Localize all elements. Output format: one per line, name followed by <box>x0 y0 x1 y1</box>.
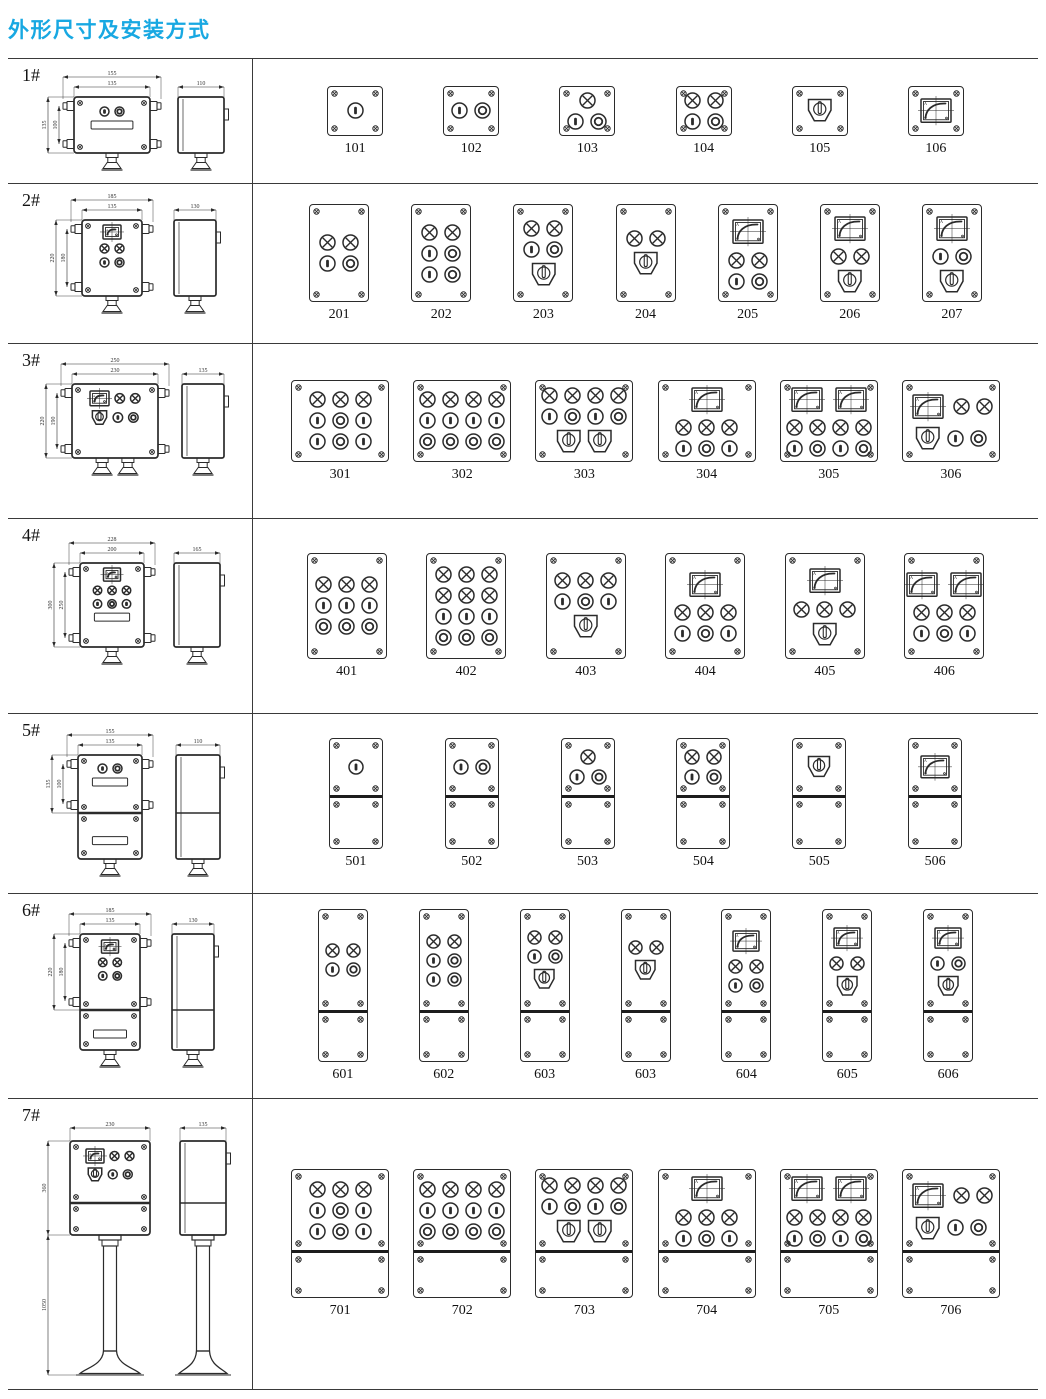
panel-row <box>532 967 557 991</box>
variant: 105 <box>792 86 848 157</box>
panel-row <box>579 748 597 766</box>
panel-section <box>420 1013 468 1061</box>
variant-label: 503 <box>577 854 598 870</box>
indicator-lamp-icon <box>674 418 693 437</box>
selector-switch-icon <box>532 967 557 991</box>
screw-icon <box>787 646 798 657</box>
panel-section <box>328 87 382 135</box>
variant-label: 202 <box>431 307 452 323</box>
start-button-icon <box>308 1222 327 1241</box>
panel-section <box>781 1253 877 1297</box>
screw-icon <box>904 1285 915 1296</box>
screw-icon <box>498 1238 509 1249</box>
variant: 703 <box>535 1169 633 1319</box>
panel-content <box>526 929 564 991</box>
screw-icon <box>867 289 878 300</box>
selector-switch-icon <box>633 958 658 982</box>
panel-row <box>434 607 499 626</box>
ammeter-icon: A <box>805 564 845 597</box>
variant-label: 101 <box>345 141 366 157</box>
indicator-lamp-icon <box>578 91 597 110</box>
variant: A206 <box>820 204 880 323</box>
start-button-icon <box>958 624 977 643</box>
start-button-icon <box>553 592 572 611</box>
screw-icon <box>447 836 458 847</box>
screw-icon <box>421 1049 432 1060</box>
stop-button-icon <box>808 1229 827 1248</box>
panel-row <box>425 952 463 969</box>
panel-section: AA <box>905 554 983 658</box>
screw-icon <box>660 382 671 393</box>
row-label: 2# <box>22 190 40 211</box>
panel-row <box>625 229 667 248</box>
panel-section: A <box>923 205 981 301</box>
panel-section <box>521 1013 569 1061</box>
dimension-label: 230 <box>106 1122 115 1128</box>
ammeter-icon: A <box>728 215 768 248</box>
panel-row <box>553 571 618 590</box>
screw-icon <box>910 836 921 847</box>
panel-section <box>412 205 470 301</box>
panel-row <box>627 939 665 956</box>
screw-icon <box>987 382 998 393</box>
panel-section <box>420 910 468 1010</box>
panel-row <box>530 261 558 287</box>
panel-content <box>553 571 618 639</box>
indicator-lamp-icon <box>720 1208 739 1227</box>
indicator-lamp-icon <box>526 929 543 946</box>
screw-icon <box>293 1254 304 1265</box>
screw-icon <box>493 555 504 566</box>
variant: 104 <box>676 86 732 157</box>
screw-icon <box>331 799 342 810</box>
variant-label: 402 <box>456 664 477 680</box>
panel-row <box>308 1180 373 1199</box>
indicator-lamp-icon <box>308 1180 327 1199</box>
selector-switch-icon <box>914 425 942 451</box>
variant-panel <box>621 909 671 1062</box>
indicator-lamp-icon <box>808 418 827 437</box>
screw-icon <box>618 206 629 217</box>
panel-section <box>909 798 961 848</box>
screw-icon <box>822 206 833 217</box>
panel-section <box>446 798 498 848</box>
panel-section: A <box>903 1170 999 1250</box>
start-button-icon <box>346 101 365 120</box>
svg-text:A: A <box>916 397 919 402</box>
panel-section <box>823 1013 871 1061</box>
panel-content <box>683 748 723 786</box>
screw-icon <box>413 206 424 217</box>
panel-row <box>806 97 834 123</box>
stop-button-icon <box>341 254 360 273</box>
indicator-lamp-icon <box>345 942 362 959</box>
variant-panel: A <box>658 1169 756 1298</box>
svg-text:A: A <box>695 1179 698 1184</box>
indicator-lamp-icon <box>829 247 848 266</box>
panel-section <box>292 1253 388 1297</box>
screw-icon <box>782 1285 793 1296</box>
variant-label: 706 <box>940 1303 961 1319</box>
panel-row <box>425 933 463 950</box>
indicator-lamp-icon <box>308 390 327 409</box>
screw-icon <box>447 783 458 794</box>
start-button-icon <box>599 592 618 611</box>
screw-icon <box>717 740 728 751</box>
variant-panel <box>676 738 730 849</box>
panel-row <box>522 219 564 238</box>
indicator-lamp-icon <box>808 1208 827 1227</box>
ammeter-icon: A <box>685 568 725 601</box>
screw-icon <box>623 1049 634 1060</box>
panel-section <box>536 1170 632 1250</box>
panel-content: A <box>916 94 956 127</box>
screw-icon <box>623 998 634 1009</box>
start-button-icon <box>347 758 365 776</box>
screw-icon <box>678 799 689 810</box>
drawing-cell: 2#A185135130220180 <box>8 184 253 343</box>
variant-cell: 601602603603A604A605A606 <box>253 894 1038 1098</box>
panel-row <box>673 624 738 643</box>
panel-row <box>522 240 564 259</box>
screw-icon <box>421 911 432 922</box>
variant-label: 504 <box>693 854 714 870</box>
svg-text:A: A <box>813 571 816 576</box>
panel-content <box>318 233 360 273</box>
ammeter-icon: A <box>908 1179 948 1212</box>
screw-icon <box>620 1285 631 1296</box>
panel-row: AA <box>787 383 871 416</box>
screw-icon <box>904 1171 915 1182</box>
screw-icon <box>623 1014 634 1025</box>
variant-label: 304 <box>696 467 717 483</box>
indicator-lamp-icon <box>418 1180 437 1199</box>
variant: A304 <box>658 380 756 483</box>
panel-row: A <box>687 383 727 416</box>
panel-row <box>785 439 873 458</box>
variant: 501 <box>329 738 383 870</box>
screw-icon <box>498 1254 509 1265</box>
indicator-lamp-icon <box>464 1180 483 1199</box>
dimension-label: 135 <box>199 368 208 374</box>
row-label: 6# <box>22 900 40 921</box>
variant-panel <box>535 1169 633 1298</box>
screw-icon <box>486 123 497 134</box>
ammeter-icon: A <box>932 212 972 245</box>
variant: AA305 <box>780 380 878 483</box>
start-button-icon <box>418 1201 437 1220</box>
screw-icon <box>413 289 424 300</box>
ammeter-icon: A <box>830 212 870 245</box>
dimension-label: 110 <box>197 81 206 87</box>
screw-icon <box>758 1014 769 1025</box>
panel-content <box>450 101 492 120</box>
row-label: 5# <box>22 720 40 741</box>
screw-icon <box>428 555 439 566</box>
screw-icon <box>732 646 743 657</box>
variant: A606 <box>923 909 973 1083</box>
start-button-icon <box>354 1201 373 1220</box>
row-label: 4# <box>22 525 40 546</box>
screw-icon <box>904 1238 915 1249</box>
dimension-label: 135 <box>42 121 48 130</box>
stop-button-icon <box>441 1222 460 1241</box>
variant-label: 105 <box>809 141 830 157</box>
stop-button-icon <box>446 971 463 988</box>
dimension-label: 220 <box>50 253 56 262</box>
screw-icon <box>723 1049 734 1060</box>
variant: 702 <box>413 1169 511 1319</box>
panel-row <box>632 250 660 276</box>
start-button-icon <box>434 607 453 626</box>
dimension-label: 185 <box>106 908 115 914</box>
dimension-label: 135 <box>199 1122 208 1128</box>
screw-icon <box>732 555 743 566</box>
screw-icon <box>663 289 674 300</box>
screw-icon <box>370 88 381 99</box>
screw-icon <box>515 289 526 300</box>
dimension-drawing: A2301353601050 <box>10 1105 250 1383</box>
panel-section: AA <box>781 381 877 461</box>
indicator-lamp-icon <box>674 1208 693 1227</box>
stop-button-icon <box>331 1222 350 1241</box>
screw-icon <box>421 1014 432 1025</box>
indicator-lamp-icon <box>457 565 476 584</box>
variant-panel <box>535 380 633 462</box>
panel-section: A <box>823 910 871 1010</box>
panel-row: A <box>687 1172 727 1205</box>
screw-icon <box>717 836 728 847</box>
panel-section <box>319 1013 367 1061</box>
svg-text:A: A <box>838 219 841 224</box>
variant-panel <box>676 86 732 136</box>
variant: A405 <box>785 553 865 680</box>
screw-icon <box>415 1238 426 1249</box>
start-button-icon <box>420 244 439 263</box>
indicator-lamp-icon <box>750 251 769 270</box>
screw-icon <box>458 206 469 217</box>
screw-icon <box>415 1254 426 1265</box>
panel-row <box>553 592 618 611</box>
variant-panel: A <box>902 1169 1000 1298</box>
start-button-icon <box>540 1197 559 1216</box>
variant-panel <box>411 204 471 302</box>
start-button-icon <box>540 407 559 426</box>
variant-label: 604 <box>736 1067 757 1083</box>
screw-icon <box>678 836 689 847</box>
screw-icon <box>723 911 734 922</box>
screw-icon <box>904 382 915 393</box>
dimension-label: 110 <box>194 739 203 745</box>
screw-icon <box>782 449 793 460</box>
indicator-lamp-icon <box>443 223 462 242</box>
screw-icon <box>447 799 458 810</box>
svg-text:A: A <box>916 1186 919 1191</box>
screw-icon <box>743 382 754 393</box>
selector-switch-icon <box>914 1215 942 1241</box>
screw-icon <box>678 123 689 134</box>
variant-label: 103 <box>577 141 598 157</box>
variant-label: 203 <box>533 307 554 323</box>
variant: 203 <box>513 204 573 323</box>
variant: 401 <box>307 553 387 680</box>
panel-section <box>677 87 731 135</box>
screw-icon <box>951 88 962 99</box>
panel-row <box>912 624 977 643</box>
variant: A207 <box>922 204 982 323</box>
selector-switch-icon <box>806 97 834 123</box>
screw-icon <box>356 206 367 217</box>
panel-content <box>452 758 492 776</box>
start-button-icon <box>719 624 738 643</box>
variant-panel <box>327 86 383 136</box>
dimension-label: 200 <box>108 547 117 553</box>
indicator-lamp-icon <box>341 233 360 252</box>
panel-content: A <box>829 212 871 295</box>
svg-text:A: A <box>938 931 941 935</box>
variant: 102 <box>443 86 499 157</box>
start-button-icon <box>441 411 460 430</box>
screw-icon <box>447 740 458 751</box>
selector-switch-icon <box>811 621 839 647</box>
variant-panel <box>419 909 469 1062</box>
stop-button-icon <box>457 628 476 647</box>
indicator-lamp-icon <box>579 748 597 766</box>
variant: 403 <box>546 553 626 680</box>
variant-label: 603 <box>534 1067 555 1083</box>
variant-panel <box>318 909 368 1062</box>
variant-label: 603 <box>635 1067 656 1083</box>
screw-icon <box>548 646 559 657</box>
drawing-cell: 4#A228200165300250 <box>8 519 253 713</box>
variant-panel <box>445 738 499 849</box>
screw-icon <box>667 646 678 657</box>
variant-cell: 101102103104105A106 <box>253 59 1038 183</box>
variant-panel: A <box>902 380 1000 462</box>
variant-panel <box>546 553 626 659</box>
screw-icon <box>758 911 769 922</box>
variant-cell: 401402403A404A405AA406 <box>253 519 1038 713</box>
screw-icon <box>960 998 971 1009</box>
screw-icon <box>486 740 497 751</box>
screw-icon <box>720 206 731 217</box>
variant: 502 <box>445 738 499 870</box>
stop-button-icon <box>935 624 954 643</box>
variant: A605 <box>822 909 872 1083</box>
panel-section <box>536 381 632 461</box>
screw-icon <box>309 646 320 657</box>
screw-icon <box>971 646 982 657</box>
screw-icon <box>824 998 835 1009</box>
start-button-icon <box>586 1197 605 1216</box>
start-button-icon <box>522 240 541 259</box>
selector-switch-icon <box>806 754 832 779</box>
panel-section: A <box>659 1170 755 1250</box>
indicator-lamp-icon <box>324 942 341 959</box>
indicator-lamp-icon <box>975 1186 994 1205</box>
ammeter-icon: A <box>787 383 827 416</box>
variant-label: 204 <box>635 307 656 323</box>
panel-content: AA <box>785 1172 873 1247</box>
screw-icon <box>537 1285 548 1296</box>
screw-icon <box>987 1254 998 1265</box>
panel-row <box>308 390 373 409</box>
indicator-lamp-icon <box>673 603 692 622</box>
screw-icon <box>522 911 533 922</box>
indicator-lamp-icon <box>952 1186 971 1205</box>
dimension-label: 228 <box>108 537 117 543</box>
panel-row <box>420 265 462 284</box>
panel-content <box>540 386 628 454</box>
indicator-lamp-icon <box>480 565 499 584</box>
indicator-lamp-icon <box>418 390 437 409</box>
variant-label: 404 <box>695 664 716 680</box>
panel-content <box>425 933 463 988</box>
variant: A604 <box>721 909 771 1083</box>
variant: 103 <box>559 86 615 157</box>
indicator-lamp-icon <box>487 390 506 409</box>
indicator-lamp-icon <box>854 1208 873 1227</box>
screw-icon <box>658 1049 669 1060</box>
screw-icon <box>537 382 548 393</box>
start-button-icon <box>354 432 373 451</box>
screw-icon <box>618 289 629 300</box>
panel-section <box>547 554 625 658</box>
panel-row <box>434 586 499 605</box>
panel-row <box>785 418 873 437</box>
indicator-lamp-icon <box>815 600 834 619</box>
screw-icon <box>557 1014 568 1025</box>
screw-icon <box>678 783 689 794</box>
indicator-lamp-icon <box>331 1180 350 1199</box>
row-label: 1# <box>22 65 40 86</box>
drawing-cell: 5#155135110135100 <box>8 714 253 893</box>
svg-text:A: A <box>795 1179 798 1184</box>
screw-icon <box>602 783 613 794</box>
dimension-label: 135 <box>106 918 115 924</box>
indicator-lamp-icon <box>586 386 605 405</box>
variant-panel <box>426 553 506 659</box>
panel-row <box>673 603 738 622</box>
variant: A205 <box>718 204 778 323</box>
variant-panel: A <box>658 380 756 462</box>
variant-cell: 501502503504505A506 <box>253 714 1038 893</box>
dimension-label: 100 <box>57 779 63 788</box>
variant: 701 <box>291 1169 389 1319</box>
panel-row <box>434 565 499 584</box>
start-button-icon <box>464 1201 483 1220</box>
variant: 504 <box>676 738 730 870</box>
screw-icon <box>743 449 754 460</box>
indicator-lamp-icon <box>547 929 564 946</box>
stop-button-icon <box>950 955 967 972</box>
screw-icon <box>782 1171 793 1182</box>
selector-switch-icon <box>530 261 558 287</box>
screw-icon <box>925 1049 936 1060</box>
screw-icon <box>924 289 935 300</box>
variant-panel: A <box>923 909 973 1062</box>
start-button-icon <box>308 411 327 430</box>
screw-icon <box>486 836 497 847</box>
panel-content: A <box>792 564 857 647</box>
screw-icon <box>376 1285 387 1296</box>
selector-switch-icon <box>586 1218 614 1244</box>
screw-icon <box>537 1238 548 1249</box>
variant-label: 601 <box>332 1067 353 1083</box>
panel-row <box>540 386 628 405</box>
panel-content <box>522 219 564 287</box>
screw-icon <box>824 1049 835 1060</box>
